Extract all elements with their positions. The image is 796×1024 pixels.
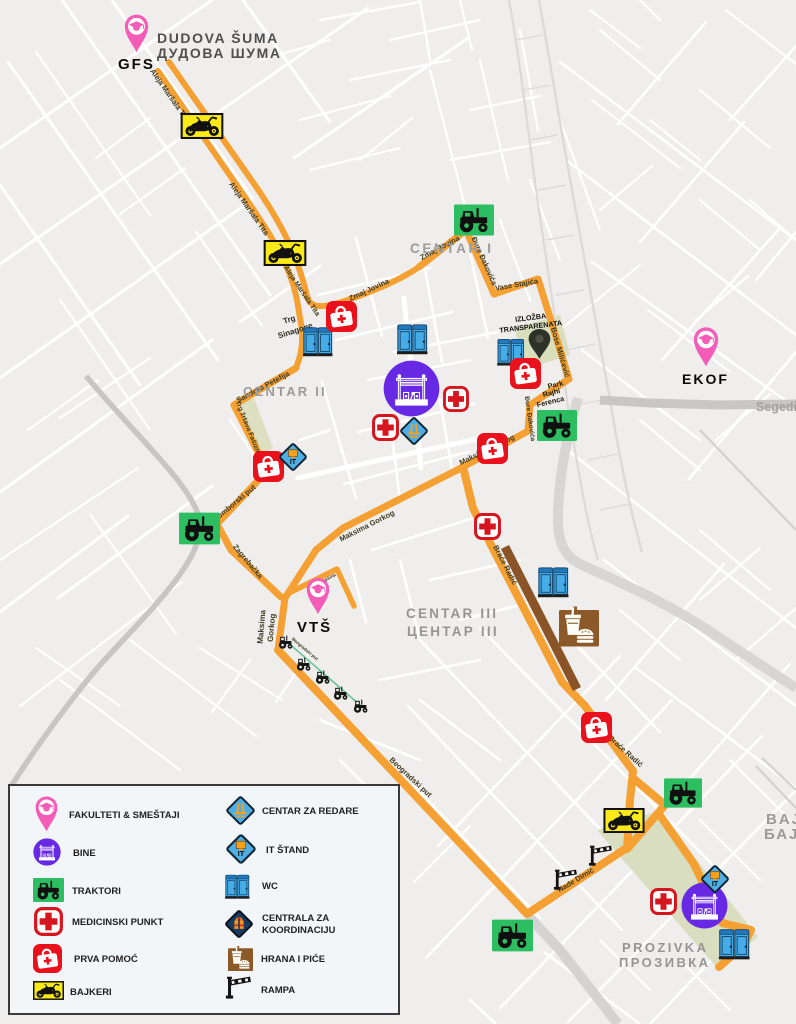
svg-text:VTŠ: VTŠ bbox=[297, 618, 332, 636]
svg-text:GFS: GFS bbox=[118, 56, 155, 73]
svg-text:RAMPA: RAMPA bbox=[261, 985, 295, 996]
svg-text:CENTRALA ZA: CENTRALA ZA bbox=[262, 913, 329, 924]
svg-text:PRVA POMOĆ: PRVA POMOĆ bbox=[74, 953, 138, 965]
svg-text:PROZIVKA: PROZIVKA bbox=[622, 940, 708, 955]
svg-text:Segedinski put: Segedinski put bbox=[756, 400, 796, 414]
svg-text:CENTAR II: CENTAR II bbox=[243, 384, 327, 399]
svg-text:IT ŠTAND: IT ŠTAND bbox=[266, 844, 309, 856]
svg-text:БАЈ: БАЈ bbox=[764, 826, 796, 843]
svg-text:ЦЕНТАР III: ЦЕНТАР III bbox=[407, 624, 499, 639]
svg-text:CENTAR ZA REDARE: CENTAR ZA REDARE bbox=[262, 806, 359, 817]
svg-text:HRANA I PIĆE: HRANA I PIĆE bbox=[261, 953, 325, 965]
svg-text:CENTAR III: CENTAR III bbox=[406, 606, 498, 621]
svg-text:WC: WC bbox=[262, 881, 278, 892]
svg-text:EKOF: EKOF bbox=[682, 371, 729, 387]
svg-text:KOORDINACIJU: KOORDINACIJU bbox=[262, 925, 336, 936]
svg-text:BAJKERI: BAJKERI bbox=[70, 987, 112, 998]
svg-text:CENTAR I: CENTAR I bbox=[410, 241, 494, 256]
svg-text:FAKULTETI & SMEŠTAJI: FAKULTETI & SMEŠTAJI bbox=[69, 809, 179, 821]
svg-text:ДУДОВА ШУМА: ДУДОВА ШУМА bbox=[157, 45, 282, 61]
svg-text:MEDICINSKI PUNKT: MEDICINSKI PUNKT bbox=[72, 917, 164, 928]
svg-text:TRAKTORI: TRAKTORI bbox=[72, 886, 121, 897]
svg-text:ПРОЗИВКА: ПРОЗИВКА bbox=[619, 955, 710, 970]
svg-text:BINE: BINE bbox=[73, 848, 96, 859]
svg-text:DUDOVA ŠUMA: DUDOVA ŠUMA bbox=[157, 29, 279, 46]
